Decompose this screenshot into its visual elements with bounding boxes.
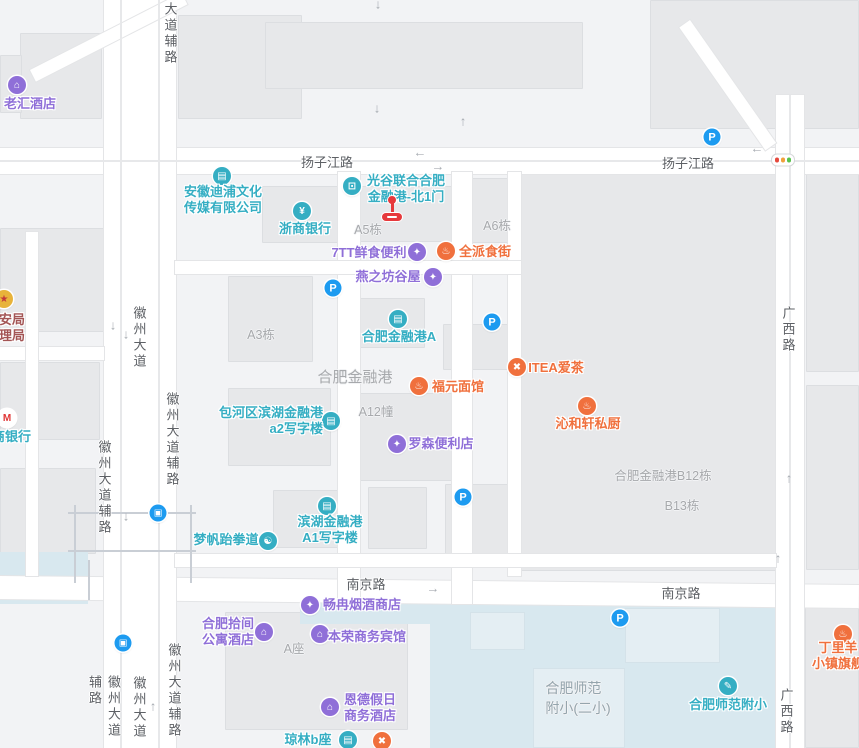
road-direction-arrow: ↓ [110, 319, 117, 332]
road-label-dadaofulu-top: 大道辅路 [161, 2, 180, 66]
road-label-nanjing-road-w: 南京路 [346, 574, 385, 593]
building-block [265, 22, 583, 89]
road-label-yangzijiang-road-e: 扬子江路 [662, 153, 714, 172]
7tt-convenience-icon[interactable]: ✦ [408, 243, 426, 261]
road [175, 261, 521, 274]
traffic-light-dot [775, 158, 780, 163]
poi-label-line: 琼林b座 [285, 732, 332, 748]
overpass-line [190, 505, 192, 583]
guanggu-north-gate1-label[interactable]: 光谷联合合肥金融港-北1门 [367, 173, 445, 205]
poi-label-line: A1写字楼 [297, 530, 362, 546]
guanggu-north-gate1-icon[interactable]: ⊡ [343, 177, 361, 195]
lawson-convenience-icon[interactable]: ✦ [388, 435, 406, 453]
parking-icon[interactable]: P [484, 314, 501, 331]
poi-label-line: 合肥金融港A [362, 329, 436, 345]
traffic-light-dot [781, 158, 786, 163]
area-label-a12-building: A12幢 [359, 401, 394, 420]
poi-label-line: 金融港-北1门 [367, 189, 445, 205]
poi-label-line: 合肥师范附小 [689, 697, 767, 713]
mengfan-taekwondo-label[interactable]: 梦帆跆拳道 [193, 532, 258, 548]
area-label-a-block: A座 [284, 638, 305, 657]
binhu-a1-office-icon[interactable]: ▤ [318, 497, 336, 515]
road-label-huizhou-fulu-west: 徽州大道辅路 [95, 440, 114, 536]
ende-holiday-hotel-icon[interactable]: ⌂ [321, 698, 339, 716]
changran-tobacco-icon[interactable]: ✦ [301, 596, 319, 614]
poi-label-line: ITEA爱茶 [528, 360, 584, 376]
area-label-a3-building: A3栋 [247, 324, 275, 343]
poi-label-line: 传媒有限公司 [184, 200, 262, 216]
zheshang-bank-icon[interactable]: ¥ [293, 202, 311, 220]
fuyuan-noodle-icon[interactable]: ♨ [410, 377, 428, 395]
school-building-block [470, 612, 525, 650]
hefei-financial-port-a-icon[interactable]: ▤ [389, 310, 407, 328]
road-direction-arrow: → [427, 582, 440, 595]
itea-tea-icon[interactable]: ✖ [508, 358, 526, 376]
road [26, 232, 38, 576]
building-block [228, 276, 313, 362]
parking-icon[interactable]: P [325, 280, 342, 297]
traffic-light-icon [771, 154, 795, 167]
yanzhifang-guwu-icon[interactable]: ✦ [424, 268, 442, 286]
benrong-hotel-icon[interactable]: ⌂ [311, 625, 329, 643]
road-direction-arrow: ↑ [150, 700, 157, 713]
poi-label-line: 包河区滨湖金融港 [219, 405, 323, 421]
poi-label-line: 合肥拾间 [202, 616, 254, 632]
building-block [0, 468, 96, 554]
poi-label-line: 畅冉烟酒商店 [323, 597, 401, 613]
poi-label-line: 安徽迪浦文化 [184, 184, 262, 200]
road-direction-arrow: → [432, 160, 445, 173]
road-label-nanjing-road-e: 南京路 [661, 583, 700, 602]
road-label-huizhou-fulu-east: 徽州大道辅路 [163, 392, 182, 488]
road-direction-arrow: ← [751, 142, 764, 155]
road-direction-arrow: ↑ [460, 115, 467, 128]
road-label-yangzijiang-road-w: 扬子江路 [301, 152, 353, 171]
road-label-huizhou-fulu-west2: 徽州大道辅路 [85, 675, 123, 748]
poi-label-line: 燕之坊谷屋 [355, 269, 420, 285]
road-direction-arrow: ← [414, 146, 427, 159]
poi-label-line: 管理局 [0, 328, 25, 344]
laohui-hotel-label[interactable]: 老汇酒店 [4, 96, 56, 112]
qionglin-b-block-label[interactable]: 琼林b座 [285, 732, 332, 748]
merchants-bank-label[interactable]: 商银行 [0, 429, 31, 445]
zheshang-bank-label[interactable]: 浙商银行 [279, 221, 331, 237]
bus-station-icon[interactable]: ▣ [150, 505, 167, 522]
area-label-line: A5栋 [354, 219, 382, 238]
overpass-line [68, 512, 196, 514]
ende-holiday-hotel-label[interactable]: 恩德假日商务酒店 [344, 692, 396, 724]
hefei-financial-port-a-label[interactable]: 合肥金融港A [362, 329, 436, 345]
poi-label-line: 老汇酒店 [4, 96, 56, 112]
area-label-line: 附小(二小) [545, 698, 610, 718]
anhui-dipu-media-label[interactable]: 安徽迪浦文化传媒有限公司 [184, 184, 262, 216]
poi-label-line: 小镇旗舰 [812, 656, 859, 672]
qinhexuan-kitchen-icon[interactable]: ♨ [578, 397, 596, 415]
parking-icon[interactable]: P [704, 129, 721, 146]
school-building-block [625, 608, 720, 663]
road-label-huizhou-avenue-bottom: 徽州大道 [130, 676, 149, 740]
binhu-a1-office-label[interactable]: 滨湖金融港A1写字楼 [297, 514, 362, 546]
road-label-guangxi-road-bottom: 广西路 [777, 688, 796, 736]
road-lane-divider [158, 0, 160, 748]
shifan-fuxiao-icon[interactable]: ✎ [719, 677, 737, 695]
area-label-a6-building: A6栋 [483, 215, 511, 234]
building-block [650, 0, 859, 129]
map-canvas[interactable]: ↓↓↑←←→↓↓↓→↑↑↑A5栋A6栋A3栋合肥金融港A12幢合肥金融港B12栋… [0, 0, 859, 748]
poi-label-line: 商务酒店 [344, 708, 396, 724]
road-lane-divider [0, 160, 859, 162]
gate-marker[interactable] [381, 196, 403, 223]
area-label-line: B13栋 [665, 495, 700, 514]
poi-label-line: 罗森便利店 [408, 436, 473, 452]
road [175, 554, 776, 567]
area-label-line: 合肥师范 [545, 678, 610, 698]
building-block [368, 487, 427, 549]
quanpai-food-street-label[interactable]: 全派食街 [459, 244, 511, 260]
poi-label-line: 公寓酒店 [202, 632, 254, 648]
laohui-hotel-icon[interactable]: ⌂ [8, 76, 26, 94]
building-block [805, 600, 859, 748]
lawson-convenience-label[interactable]: 罗森便利店 [408, 436, 473, 452]
bottom-restaurant-icon[interactable]: ✖ [373, 732, 391, 748]
overpass-line [88, 560, 90, 600]
poi-label-line: 光谷联合合肥 [367, 173, 445, 189]
poi-label-line: 商银行 [0, 429, 31, 445]
shifan-fuxiao-label[interactable]: 合肥师范附小 [689, 697, 767, 713]
parking-icon[interactable]: P [612, 610, 629, 627]
baohe-binhu-a2-office-label[interactable]: 包河区滨湖金融港a2写字楼 [219, 405, 323, 437]
dingliyang-flagship-label[interactable]: 丁里羊小镇旗舰 [812, 640, 859, 672]
area-label-b13-building: B13栋 [665, 495, 700, 514]
qionglin-b-block-icon[interactable]: ▤ [339, 731, 357, 748]
area-label-line: 合肥金融港 [317, 366, 392, 387]
road-direction-arrow: ↓ [375, 0, 382, 11]
poi-label-line: 梦帆跆拳道 [193, 532, 258, 548]
road-direction-arrow: ↓ [123, 510, 130, 523]
poi-label-line: 本荣商务宾馆 [328, 629, 406, 645]
parking-icon[interactable]: P [455, 489, 472, 506]
itea-tea-label[interactable]: ITEA爱茶 [528, 360, 584, 376]
anhui-dipu-media-icon[interactable]: ▤ [213, 167, 231, 185]
7tt-convenience-label[interactable]: 7TT鲜食便利 [331, 245, 406, 261]
changran-tobacco-label[interactable]: 畅冉烟酒商店 [323, 597, 401, 613]
hefei-shijian-apartment-label[interactable]: 合肥拾间公寓酒店 [202, 616, 254, 648]
yanzhifang-guwu-label[interactable]: 燕之坊谷屋 [355, 269, 420, 285]
road-label-guangxi-road-top: 广西路 [779, 306, 798, 354]
poi-label-line: 浙商银行 [279, 221, 331, 237]
bus-station-icon[interactable]: ▣ [115, 635, 132, 652]
road-direction-arrow: ↓ [123, 328, 130, 341]
poi-label-line: 丁里羊 [812, 640, 859, 656]
road [0, 347, 104, 360]
overpass-line [74, 505, 76, 583]
poi-label-line: a2写字楼 [219, 421, 323, 437]
area-label-hefei-financial-port: 合肥金融港 [317, 366, 392, 387]
area-label-a5-building: A5栋 [354, 219, 382, 238]
area-label-b12-building: 合肥金融港B12栋 [614, 465, 711, 484]
road [104, 0, 176, 748]
area-label-line: A12幢 [359, 401, 394, 420]
poi-label-line: 7TT鲜食便利 [331, 245, 406, 261]
poi-label-line: 滨湖金融港 [297, 514, 362, 530]
poi-label-line: 沁和轩私厨 [555, 416, 620, 432]
area-label-line: A3栋 [247, 324, 275, 343]
baohe-binhu-a2-office-icon[interactable]: ▤ [322, 412, 340, 430]
road-lane-divider [789, 95, 791, 748]
mengfan-taekwondo-icon[interactable]: ☯ [259, 532, 277, 550]
poi-label-line: 福元面馆 [432, 379, 484, 395]
road-label-huizhou-avenue-mid: 徽州大道 [130, 306, 149, 370]
fuyuan-noodle-label[interactable]: 福元面馆 [432, 379, 484, 395]
road-label-huizhou-fulu-east2: 徽州大道辅路 [165, 643, 184, 739]
area-label-line: 合肥金融港B12栋 [614, 465, 711, 484]
poi-label-line: 公安局 [0, 312, 25, 328]
road-direction-arrow: ↑ [786, 472, 793, 485]
qinhexuan-kitchen-label[interactable]: 沁和轩私厨 [555, 416, 620, 432]
quanpai-food-street-icon[interactable]: ♨ [437, 242, 455, 260]
hefei-shijian-apartment-icon[interactable]: ⌂ [255, 623, 273, 641]
benrong-hotel-label[interactable]: 本荣商务宾馆 [328, 629, 406, 645]
overpass-line [68, 550, 196, 552]
building-block [806, 385, 859, 570]
road-direction-arrow: ↑ [775, 552, 782, 565]
area-label-line: A6栋 [483, 215, 511, 234]
poi-label-line: 恩德假日 [344, 692, 396, 708]
traffic-light-dot [787, 158, 792, 163]
road-direction-arrow: ↓ [374, 102, 381, 115]
gate-marker-slot [387, 216, 397, 219]
building-block [806, 172, 859, 372]
public-security-bureau-label[interactable]: 公安局管理局 [0, 312, 25, 344]
area-label-line: A座 [284, 638, 305, 657]
poi-label-line: 全派食街 [459, 244, 511, 260]
area-label-shifan-erxiao: 合肥师范附小(二小) [545, 678, 610, 718]
